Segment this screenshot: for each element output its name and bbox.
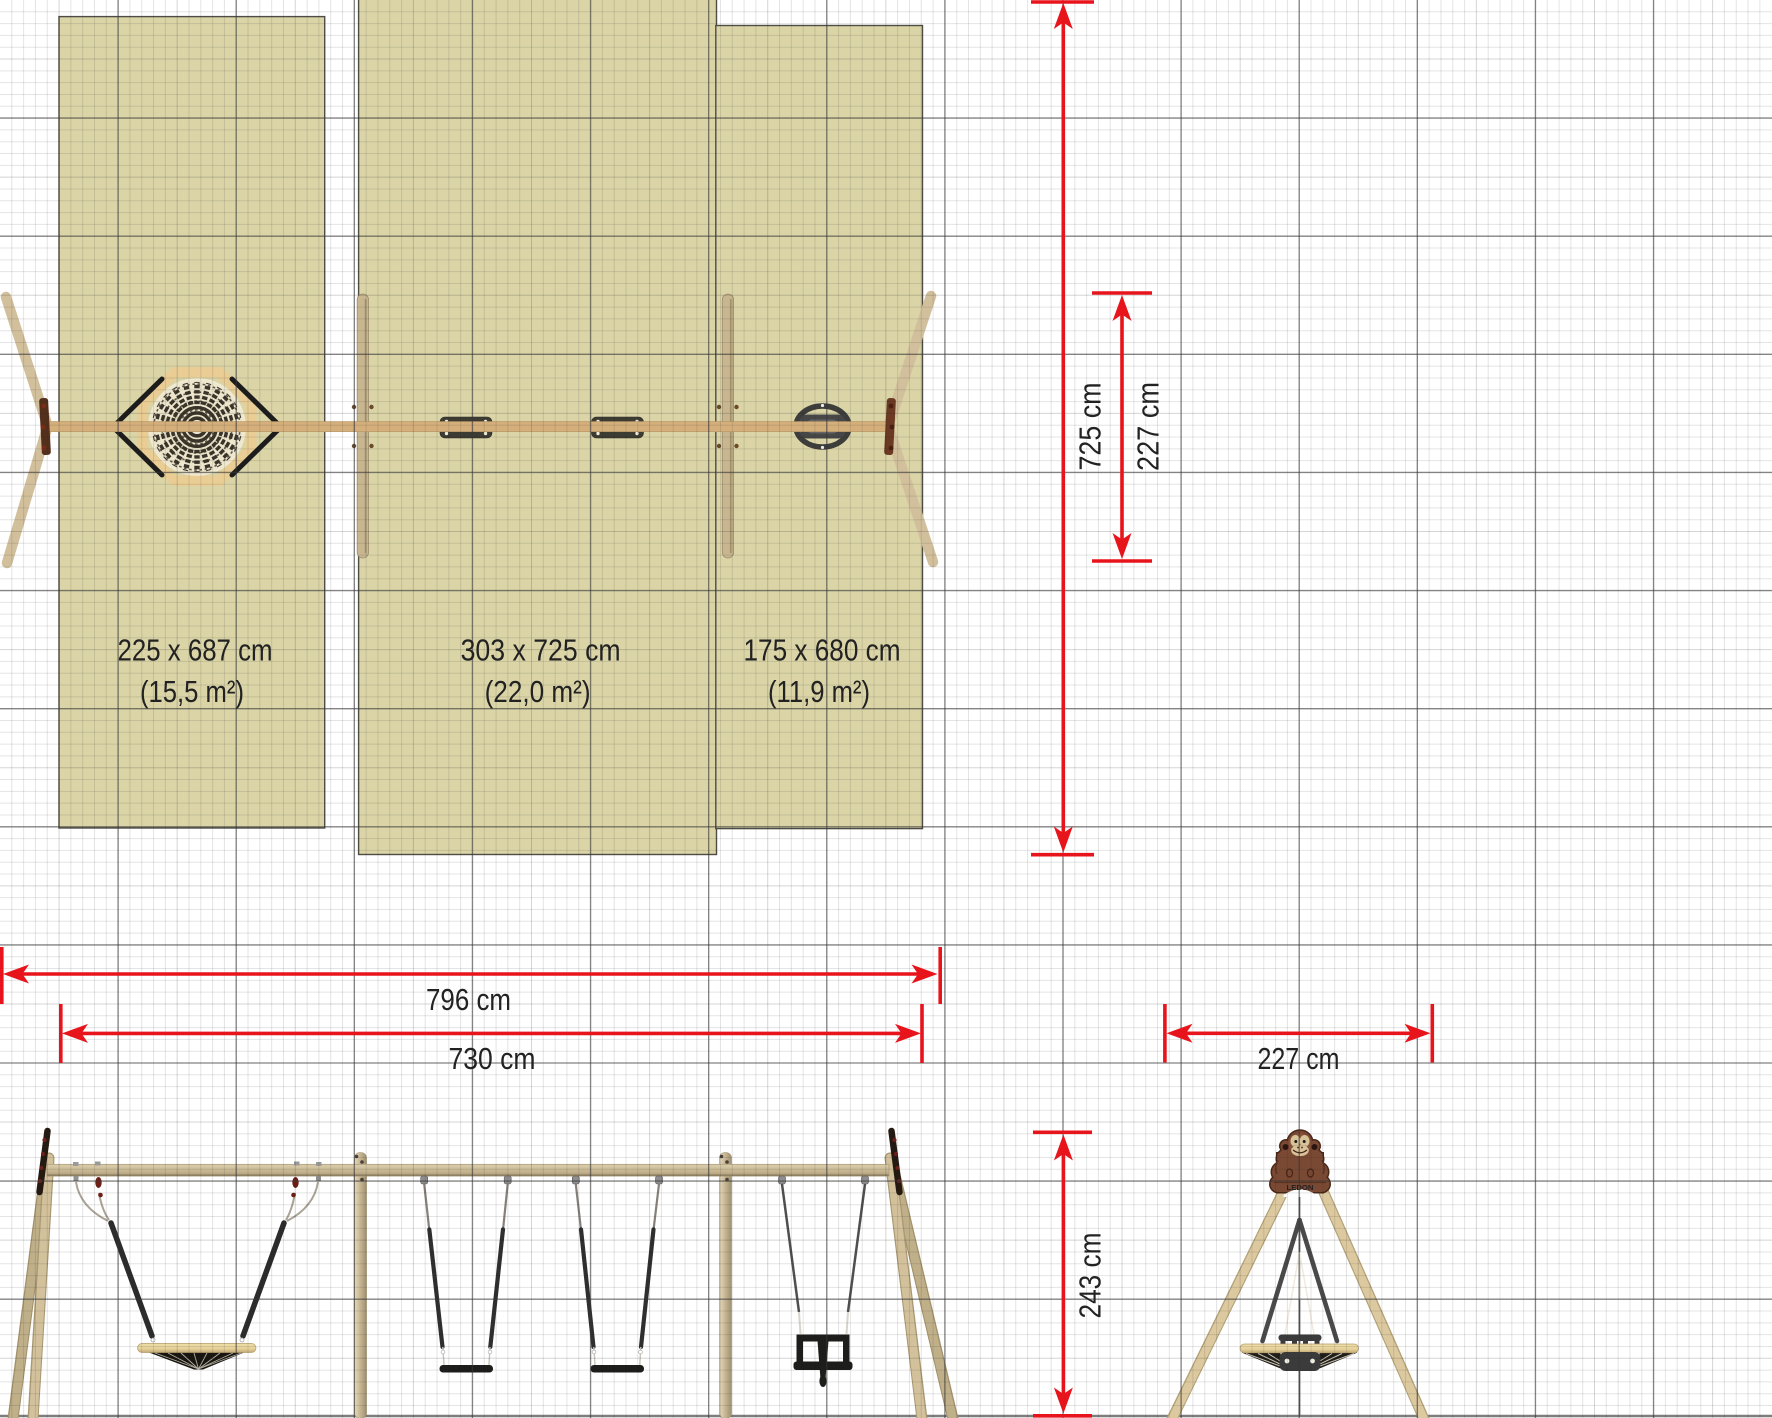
svg-text:303 x 725 cm: 303 x 725 cm	[461, 633, 621, 667]
svg-text:225 x 687 cm: 225 x 687 cm	[118, 633, 273, 667]
svg-text:725 cm: 725 cm	[1074, 383, 1108, 471]
svg-text:(15,5 m²): (15,5 m²)	[140, 675, 244, 709]
svg-text:(11,9 m²): (11,9 m²)	[768, 675, 870, 709]
svg-text:243 cm: 243 cm	[1074, 1233, 1108, 1319]
svg-text:227 cm: 227 cm	[1132, 382, 1166, 471]
svg-text:796 cm: 796 cm	[426, 983, 511, 1017]
svg-text:175 x 680 cm: 175 x 680 cm	[744, 633, 901, 667]
svg-text:730 cm: 730 cm	[449, 1042, 536, 1076]
svg-text:(22,0 m²): (22,0 m²)	[485, 675, 591, 709]
svg-text:LEDON: LEDON	[1287, 1183, 1314, 1192]
svg-text:227 cm: 227 cm	[1258, 1042, 1340, 1076]
